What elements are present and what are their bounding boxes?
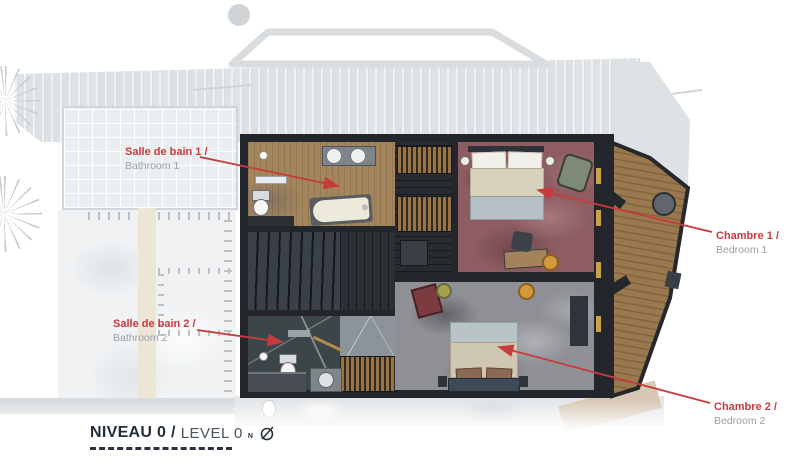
label-bathroom2: Salle de bain 2 / Bathroom 2 — [113, 318, 196, 345]
label-bedroom2: Chambre 2 / Bedroom 2 — [714, 401, 777, 428]
annotation-lines-svg — [0, 0, 800, 465]
north-letter: N — [248, 433, 253, 440]
label-bedroom2-fr: Chambre 2 / — [714, 401, 777, 415]
label-bathroom2-fr: Salle de bain 2 / — [113, 318, 196, 332]
leader-bathroom1 — [200, 157, 338, 186]
legend-dashed-rule — [90, 447, 232, 450]
level-title-fr: NIVEAU 0 / — [90, 424, 176, 442]
label-bedroom1: Chambre 1 / Bedroom 1 — [716, 230, 779, 257]
label-bathroom1: Salle de bain 1 / Bathroom 1 — [125, 146, 208, 173]
north-compass-icon — [258, 424, 276, 442]
leader-bathroom2 — [197, 330, 282, 342]
level-title-en: LEVEL 0 — [181, 425, 243, 442]
legend-block: NIVEAU 0 / LEVEL 0 N — [90, 424, 276, 450]
label-bathroom2-en: Bathroom 2 — [113, 332, 196, 345]
label-bedroom1-fr: Chambre 1 / — [716, 230, 779, 244]
label-bedroom2-en: Bedroom 2 — [714, 415, 777, 428]
label-bedroom1-en: Bedroom 1 — [716, 244, 779, 257]
leader-bedroom1 — [538, 190, 712, 232]
label-bathroom1-en: Bathroom 1 — [125, 160, 208, 173]
label-bathroom1-fr: Salle de bain 1 / — [125, 146, 208, 160]
leader-bedroom2 — [499, 347, 710, 403]
floor-plan-stage: Salle de bain 1 / Bathroom 1 Salle de ba… — [0, 0, 800, 465]
